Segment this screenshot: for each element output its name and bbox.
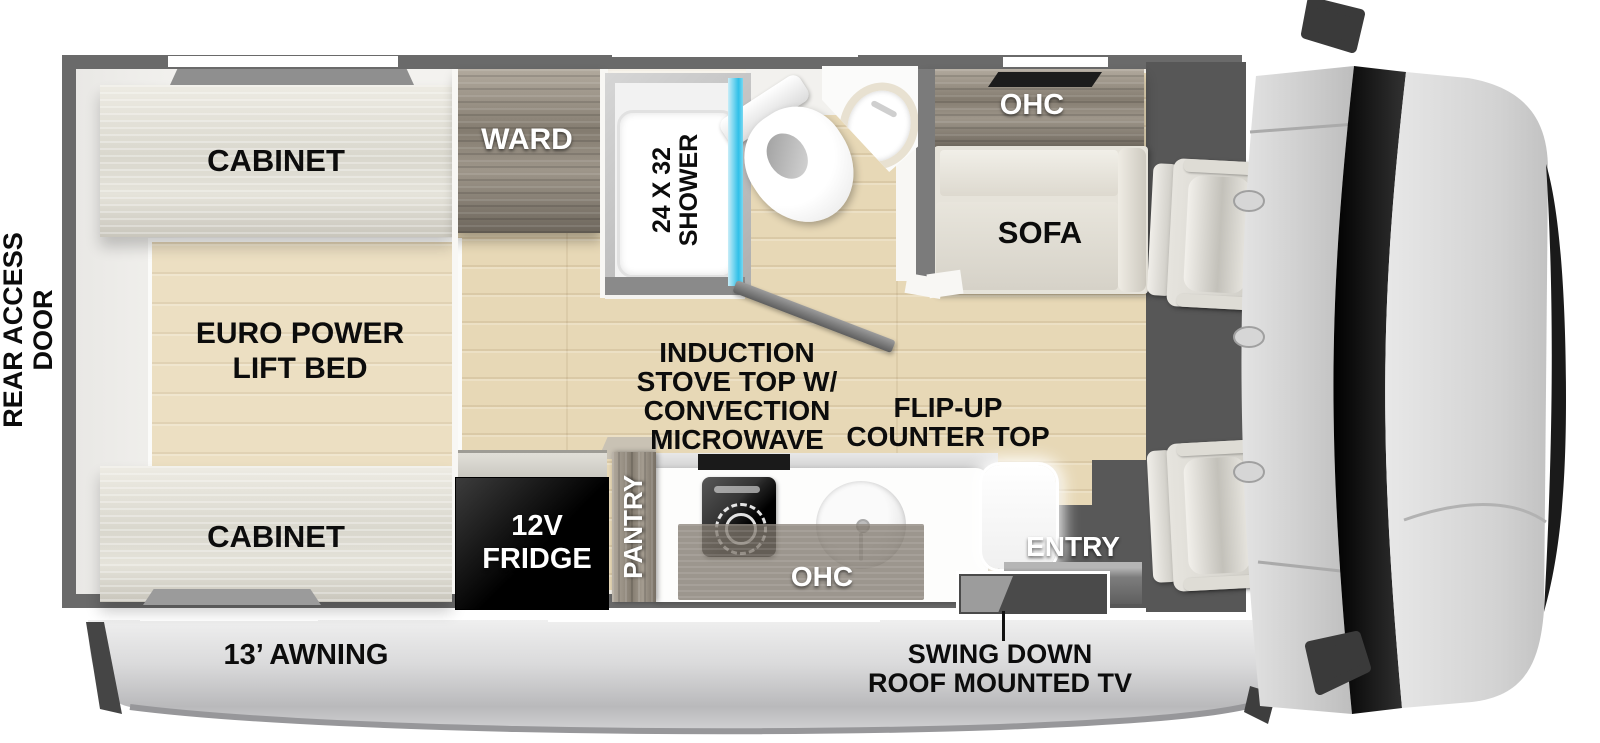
entry-label: ENTRY [993, 532, 1153, 562]
window-strip-top-bath [612, 45, 858, 57]
shower-label: 24 X 32 SHOWER [649, 100, 703, 280]
tv-callout-line [1002, 611, 1005, 641]
window-strip-top-rear [168, 56, 398, 67]
roof-vent-rear-top [170, 69, 414, 85]
flip-up-counter-label: FLIP-UP COUNTER TOP [798, 393, 1098, 451]
euro-bed-line1: EURO POWER [130, 316, 470, 351]
range-vent [698, 454, 790, 470]
awning-label: 13’ AWNING [156, 640, 456, 671]
shower-line1: 24 X 32 [649, 100, 676, 280]
bath-bottom-wall [605, 277, 745, 299]
shower-line2: SHOWER [676, 100, 703, 280]
swing-down-tv [956, 571, 1110, 617]
sofa-end-cap [926, 270, 963, 298]
shower-glass-panel [728, 78, 743, 286]
passenger-seat [1146, 439, 1270, 593]
rear-access-door-label: REAR ACCESS DOOR [0, 220, 58, 440]
window-strip-bottom-rear [140, 611, 318, 621]
roof-vent-sofa [988, 72, 1102, 87]
flip-up-line1: FLIP-UP [798, 393, 1098, 422]
stove-line2: STOVE TOP W/ [587, 367, 887, 396]
window-strip-top-sofa [1003, 57, 1108, 67]
rv-floorplan-diagram: REAR ACCESS DOOR CABINET EURO POWER LIFT… [0, 0, 1600, 743]
euro-bed-line2: LIFT BED [130, 351, 470, 386]
flip-up-line2: COUNTER TOP [798, 422, 1098, 451]
tv-line2: ROOF MOUNTED TV [850, 669, 1150, 698]
stove-line1: INDUCTION [587, 338, 887, 367]
driver-seat [1146, 157, 1270, 311]
cabinet-bottom-label: CABINET [106, 520, 446, 553]
ohc-kitchen-label: OHC [742, 562, 902, 592]
sofa-back-cushion [940, 150, 1118, 196]
driver-seat-cushion [1183, 175, 1251, 294]
rear-access-door-line1: REAR ACCESS [0, 220, 28, 440]
bath-right-wall [916, 69, 935, 281]
tv-line1: SWING DOWN [850, 640, 1150, 669]
roof-vent-rear-bottom [143, 589, 321, 605]
swing-down-tv-label: SWING DOWN ROOF MOUNTED TV [850, 640, 1150, 698]
fridge-label: 12V FRIDGE [437, 510, 637, 576]
ohc-sofa-label: OHC [952, 90, 1112, 121]
rear-access-door-line2: DOOR [28, 220, 58, 440]
tv-panel-wedge [961, 576, 1013, 612]
window-strip-bottom-kitchen [548, 612, 880, 622]
passenger-seat-cushion [1183, 456, 1251, 575]
pantry-label: PANTRY [620, 442, 648, 612]
fridge-line1: 12V [437, 510, 637, 543]
cabinet-top-label: CABINET [106, 144, 446, 177]
euro-bed-label: EURO POWER LIFT BED [130, 316, 470, 386]
sofa-label: SOFA [940, 216, 1140, 249]
wardrobe-label: WARD [427, 124, 627, 156]
fridge-line2: FRIDGE [437, 543, 637, 576]
